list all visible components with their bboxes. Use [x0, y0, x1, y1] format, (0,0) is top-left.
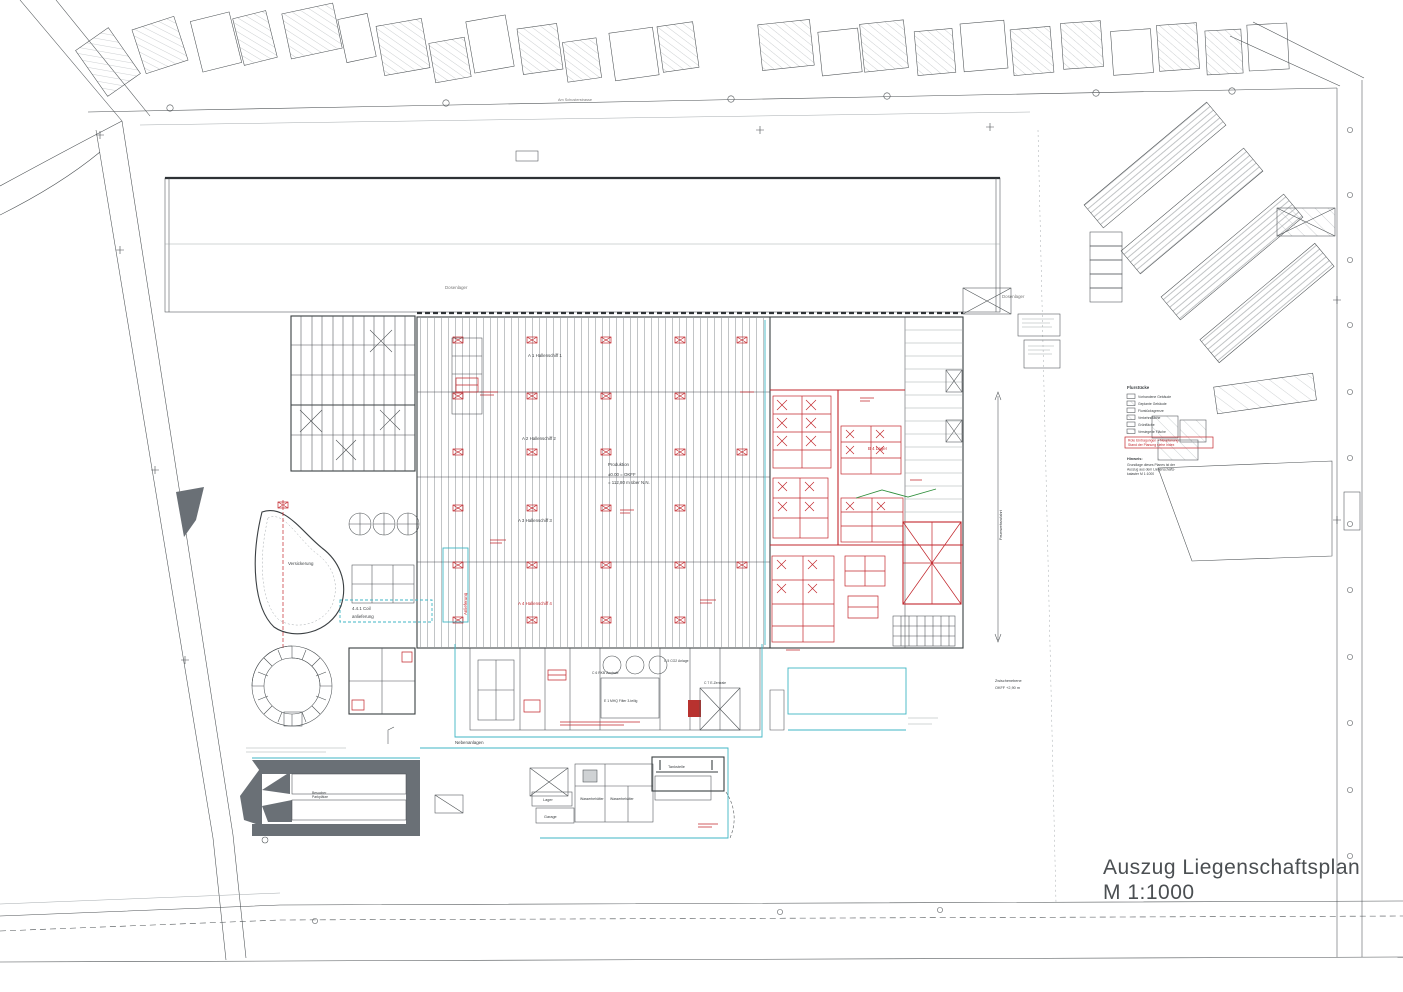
- storage-racks: [893, 616, 955, 646]
- legend-item-2: Flurstücksgrenze: [1138, 409, 1164, 413]
- visitor-parking: Besucher Parkplätze: [240, 727, 420, 843]
- hatched-outbuilding: [349, 648, 415, 714]
- co2-label: C 5 CO2 Anlage: [664, 659, 689, 663]
- ezentrale-label: C 7 E-Zentrale: [704, 681, 726, 685]
- filter-label: E 1 MHQ Filter 3-teilig: [604, 699, 637, 703]
- hinweis-line1: Grundlage dieses Planes ist der: [1127, 463, 1176, 467]
- nebenanlagen-label: Nebenanlagen: [455, 740, 484, 745]
- anlieferung-label: Anlieferung: [463, 592, 468, 615]
- produktion-line2: ±0.00 = OKFF: [608, 472, 636, 477]
- versickerung-label: Versickerung: [288, 561, 314, 566]
- hall2-label: A 2 Hallenschiff 2: [522, 436, 556, 441]
- coil-label-1: 4.4.1 Coil: [352, 606, 371, 611]
- legend-item-1: Geplante Gebäude: [1138, 402, 1167, 406]
- right-site-labels: Feuerwehrzufahrt Zwischenebene OKFF +2,9…: [995, 392, 1022, 690]
- site-plan-page: Am Schusterstrasse: [0, 0, 1403, 992]
- tankstelle-label: Tankstelle: [668, 765, 685, 769]
- neighbour-houses-top: [76, 3, 1290, 161]
- hinweis-line3: kataster M 1:1000: [1127, 472, 1154, 476]
- hall4-label: A 4 Hallenschiff 4: [518, 601, 552, 606]
- parkplaetze-line2: Parkplätze: [312, 795, 328, 799]
- produktion-line3: = 112,80 m über N.N.: [608, 480, 650, 485]
- zwischenebene-line2: OKFF +2,90 m: [995, 686, 1020, 690]
- red-note-line1: Rote Eintragungen = Neuplanung: [1128, 439, 1179, 443]
- garage-label: Garage: [544, 815, 557, 819]
- dosenlager-left-label: Dosenlager: [445, 285, 468, 290]
- infiltration-pond: Versickerung: [255, 500, 343, 648]
- gray-wedge: [176, 487, 204, 537]
- wasser1-label: Wasserbehälter: [580, 797, 604, 801]
- title-line2: M 1:1000: [1103, 881, 1195, 904]
- legend-header: Flurstücke: [1127, 385, 1150, 390]
- legend-item-4: Grünfläche: [1138, 423, 1155, 427]
- tank-farm: 4.4.1 Coil anlieferung: [340, 513, 432, 622]
- dosenlager-right-label: Dosenlager: [1002, 294, 1025, 299]
- hall3-label: A 3 Hallenschiff 3: [518, 518, 552, 523]
- tankstelle: Tankstelle: [652, 757, 734, 838]
- feuerwehr-label: Feuerwehrzufahrt: [999, 509, 1003, 540]
- red-note-line2: Stand der Planung siehe Index: [1128, 443, 1175, 447]
- hinweis-line2: Auszug aus dem Liegenschafts-: [1127, 468, 1175, 472]
- rkb-label: C 6 RKB Zentrale: [592, 671, 619, 675]
- roof-opening-symbols: [946, 370, 962, 442]
- site-plan-drawing: Am Schusterstrasse: [0, 0, 1403, 992]
- hinweis-header: Hinweis:: [1127, 457, 1143, 461]
- b4-lager-label: B 4 Lager: [868, 446, 888, 451]
- garage-row: [1090, 232, 1122, 302]
- hall1-label: A 1 Hallenschiff 1: [528, 353, 562, 358]
- title-line1: Auszug Liegenschaftsplan: [1103, 856, 1360, 879]
- legend-item-3: Verkehrsfläche: [1138, 416, 1161, 420]
- coil-label-2: anlieferung: [352, 614, 374, 619]
- legend-item-5: Versiegelte Fläche: [1138, 430, 1166, 434]
- lager-label: Lager: [543, 798, 553, 802]
- zwischenebene-line1: Zwischenebene: [995, 679, 1022, 683]
- drawing-title: Auszug Liegenschaftsplan M 1:1000: [1103, 856, 1360, 904]
- legend-item-0: Vorhandene Gebäude: [1138, 395, 1171, 399]
- dock-canopy-area: [770, 668, 938, 730]
- nebenanlagen-strip: C 6 RKB Zentrale E 1 MHQ Filter 3-teilig…: [455, 644, 762, 745]
- produktion-line1: Produktion: [608, 462, 630, 467]
- spiral-ramp: [252, 646, 332, 726]
- street-name: Am Schusterstrasse: [558, 98, 592, 102]
- production-hall: A 1 Hallenschiff 1 A 2 Hallenschiff 2 A …: [417, 313, 963, 650]
- neighbour-parcels-right: [1084, 102, 1360, 561]
- service-buildings: Lager Garage Wasserbehälter Wasserbehält…: [420, 748, 734, 838]
- wasser2-label: Wasserbehälter: [610, 797, 634, 801]
